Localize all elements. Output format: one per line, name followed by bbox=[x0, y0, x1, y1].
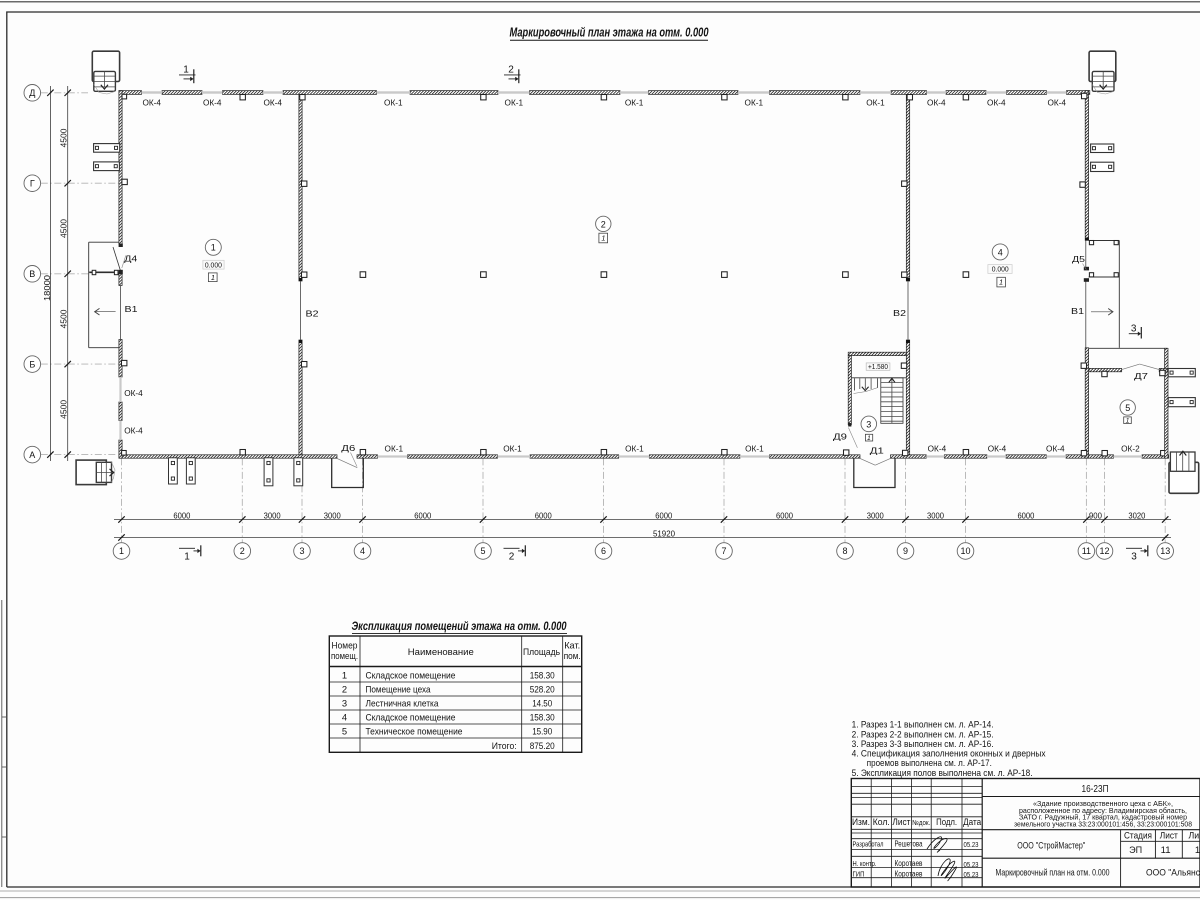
svg-text:4500: 4500 bbox=[59, 219, 69, 238]
svg-text:3000: 3000 bbox=[927, 511, 944, 521]
svg-text:ОК-4: ОК-4 bbox=[928, 443, 947, 453]
svg-text:Изм.: Изм. bbox=[852, 817, 870, 827]
svg-text:16-23П: 16-23П bbox=[1082, 784, 1109, 795]
svg-text:Дата: Дата bbox=[963, 817, 981, 827]
svg-text:528.20: 528.20 bbox=[530, 683, 555, 694]
svg-text:В1: В1 bbox=[125, 304, 138, 314]
svg-text:ЭП: ЭП bbox=[1129, 845, 1142, 856]
svg-text:Д4: Д4 bbox=[124, 254, 137, 264]
svg-text:6000: 6000 bbox=[655, 511, 672, 521]
svg-text:Д6: Д6 bbox=[341, 443, 355, 453]
svg-text:9: 9 bbox=[903, 546, 908, 556]
svg-text:1: 1 bbox=[999, 278, 1003, 287]
svg-text:Коротаев: Коротаев bbox=[895, 859, 923, 868]
svg-text:Лис: Лис bbox=[1189, 831, 1200, 841]
svg-text:ООО "Альянс": ООО "Альянс" bbox=[1146, 868, 1200, 879]
svg-text:Лист: Лист bbox=[892, 817, 910, 827]
svg-text:2: 2 bbox=[509, 551, 515, 562]
svg-text:ОК-1: ОК-1 bbox=[745, 97, 764, 107]
svg-text:ОК-1: ОК-1 bbox=[745, 443, 764, 453]
svg-text:10: 10 bbox=[960, 546, 970, 556]
svg-text:1: 1 bbox=[342, 669, 347, 680]
svg-text:Подл.: Подл. bbox=[936, 817, 957, 827]
svg-text:2: 2 bbox=[240, 546, 245, 556]
svg-text:ОК-4: ОК-4 bbox=[987, 97, 1006, 107]
svg-text:Решетова: Решетова bbox=[895, 839, 924, 848]
svg-text:Лестничная клетка: Лестничная клетка bbox=[366, 697, 440, 708]
svg-text:1: 1 bbox=[601, 234, 605, 243]
svg-text:3000: 3000 bbox=[324, 511, 341, 521]
svg-text:3: 3 bbox=[1131, 551, 1137, 562]
svg-text:6000: 6000 bbox=[1017, 511, 1034, 521]
svg-text:3000: 3000 bbox=[264, 511, 281, 521]
svg-text:3: 3 bbox=[299, 546, 304, 556]
svg-text:ОК-1: ОК-1 bbox=[503, 443, 522, 453]
svg-text:ОК-1: ОК-1 bbox=[384, 97, 403, 107]
svg-text:Д1: Д1 bbox=[870, 445, 884, 455]
svg-text:1: 1 bbox=[211, 243, 216, 253]
svg-text:ОК-4: ОК-4 bbox=[142, 97, 161, 107]
svg-text:ОК-4: ОК-4 bbox=[124, 388, 143, 398]
svg-text:Номер: Номер bbox=[332, 641, 358, 651]
svg-text:1: 1 bbox=[183, 65, 189, 76]
svg-text:12: 12 bbox=[1099, 546, 1109, 556]
svg-text:2: 2 bbox=[342, 683, 347, 694]
svg-text:0.000: 0.000 bbox=[205, 260, 222, 269]
svg-text:Разработал: Разработал bbox=[853, 839, 884, 848]
svg-text:Наименование: Наименование bbox=[408, 647, 474, 658]
svg-text:51920: 51920 bbox=[653, 528, 675, 538]
svg-text:6000: 6000 bbox=[776, 511, 793, 521]
svg-text:4500: 4500 bbox=[59, 400, 69, 419]
svg-text:5: 5 bbox=[342, 725, 347, 736]
svg-text:Помещение цеха: Помещение цеха bbox=[366, 683, 432, 694]
svg-text:Д5: Д5 bbox=[1072, 254, 1085, 264]
svg-text:4: 4 bbox=[342, 711, 347, 722]
svg-text:05.23: 05.23 bbox=[964, 860, 979, 869]
svg-text:+1.580: +1.580 bbox=[868, 362, 888, 371]
svg-text:ОК-1: ОК-1 bbox=[625, 97, 644, 107]
svg-text:Складское помещение: Складское помещение bbox=[366, 669, 456, 680]
svg-text:0.000: 0.000 bbox=[992, 265, 1009, 274]
svg-text:Г: Г bbox=[30, 179, 35, 189]
svg-text:158.30: 158.30 bbox=[530, 669, 555, 680]
svg-text:05.23: 05.23 bbox=[964, 840, 979, 849]
svg-text:ОК-4: ОК-4 bbox=[1046, 443, 1065, 453]
svg-text:В2: В2 bbox=[893, 308, 906, 318]
svg-text:3: 3 bbox=[342, 697, 347, 708]
svg-text:1: 1 bbox=[184, 551, 190, 562]
svg-text:пом.: пом. bbox=[564, 651, 581, 661]
svg-text:Н. контр.: Н. контр. bbox=[853, 859, 877, 868]
svg-text:875.20: 875.20 bbox=[530, 740, 555, 751]
svg-text:ОК-1: ОК-1 bbox=[505, 97, 524, 107]
svg-text:ОК-1: ОК-1 bbox=[385, 443, 404, 453]
svg-text:900: 900 bbox=[1089, 511, 1102, 521]
svg-text:ООО "СтройМастер": ООО "СтройМастер" bbox=[1017, 840, 1085, 850]
svg-text:4: 4 bbox=[360, 546, 365, 556]
svg-text:3020: 3020 bbox=[1128, 511, 1145, 521]
svg-text:Д: Д bbox=[29, 88, 35, 98]
svg-text:Кат.: Кат. bbox=[564, 641, 580, 651]
svg-text:ОК-2: ОК-2 bbox=[1121, 443, 1140, 453]
svg-text:11: 11 bbox=[1082, 546, 1091, 556]
svg-text:4500: 4500 bbox=[59, 128, 69, 147]
svg-text:ОК-1: ОК-1 bbox=[625, 443, 644, 453]
svg-text:ОК-4: ОК-4 bbox=[1047, 97, 1066, 107]
svg-text:ОК-4: ОК-4 bbox=[124, 426, 143, 436]
svg-text:158.30: 158.30 bbox=[530, 711, 555, 722]
svg-text:6: 6 bbox=[601, 546, 606, 556]
svg-text:Коротаев: Коротаев bbox=[895, 869, 923, 878]
svg-text:Кол.: Кол. bbox=[873, 817, 890, 827]
svg-text:Итого:: Итого: bbox=[492, 740, 517, 751]
svg-text:3000: 3000 bbox=[867, 511, 884, 521]
svg-text:2: 2 bbox=[601, 219, 606, 229]
svg-text:земельного участка 33:23:00010: земельного участка 33:23:000101:456, 33:… bbox=[1014, 820, 1192, 829]
svg-text:1: 1 bbox=[1195, 845, 1200, 856]
svg-text:1: 1 bbox=[119, 546, 124, 556]
svg-text:№док.: №док. bbox=[912, 818, 930, 827]
svg-text:05.23: 05.23 bbox=[964, 870, 979, 879]
svg-text:В2: В2 bbox=[306, 309, 319, 319]
svg-text:помещ.: помещ. bbox=[331, 651, 358, 661]
svg-text:Б: Б bbox=[29, 359, 35, 369]
svg-text:8: 8 bbox=[842, 546, 847, 556]
svg-text:Стадия: Стадия bbox=[1124, 831, 1152, 841]
svg-text:6000: 6000 bbox=[414, 511, 431, 521]
svg-text:5: 5 bbox=[480, 546, 485, 556]
svg-text:Маркировочный план этажа на от: Маркировочный план этажа на отм. 0.000 bbox=[510, 25, 709, 40]
svg-text:5. Экспликация полов выполнена: 5. Экспликация полов выполнена см. л. АР… bbox=[852, 768, 1033, 779]
svg-text:Лист: Лист bbox=[1160, 831, 1178, 841]
svg-text:Площадь: Площадь bbox=[523, 646, 560, 657]
svg-text:Маркировочный план на отм. 0.0: Маркировочный план на отм. 0.000 bbox=[996, 867, 1110, 877]
svg-text:3: 3 bbox=[1131, 323, 1137, 334]
svg-text:ОК-1: ОК-1 bbox=[866, 97, 885, 107]
svg-text:1: 1 bbox=[867, 435, 871, 442]
svg-text:1: 1 bbox=[1126, 417, 1130, 424]
svg-text:15.90: 15.90 bbox=[532, 725, 552, 736]
svg-text:4: 4 bbox=[998, 247, 1003, 257]
svg-text:11: 11 bbox=[1161, 845, 1171, 856]
svg-text:Техническое помещение: Техническое помещение bbox=[366, 725, 463, 736]
svg-text:Д9: Д9 bbox=[833, 432, 847, 442]
svg-text:2: 2 bbox=[508, 65, 514, 76]
svg-text:Складское помещение: Складское помещение bbox=[366, 711, 456, 722]
svg-text:ОК-4: ОК-4 bbox=[263, 97, 282, 107]
svg-text:6000: 6000 bbox=[173, 511, 190, 521]
svg-text:4500: 4500 bbox=[59, 309, 69, 328]
svg-text:ГИП: ГИП bbox=[853, 869, 865, 878]
svg-text:7: 7 bbox=[721, 546, 726, 556]
svg-text:В: В bbox=[29, 269, 35, 279]
svg-text:В1: В1 bbox=[1071, 306, 1084, 316]
svg-text:18000: 18000 bbox=[42, 275, 52, 301]
svg-text:1: 1 bbox=[211, 273, 215, 282]
svg-text:Экспликация помещений этажа на: Экспликация помещений этажа на отм. 0.00… bbox=[352, 620, 567, 633]
svg-text:6000: 6000 bbox=[535, 511, 552, 521]
svg-text:5: 5 bbox=[1125, 403, 1130, 413]
svg-text:13: 13 bbox=[1160, 546, 1170, 556]
svg-text:ОК-4: ОК-4 bbox=[988, 443, 1007, 453]
svg-text:14.50: 14.50 bbox=[532, 697, 552, 708]
svg-text:3: 3 bbox=[866, 419, 871, 429]
svg-text:ОК-4: ОК-4 bbox=[927, 97, 946, 107]
svg-text:А: А bbox=[29, 450, 35, 460]
svg-text:ОК-4: ОК-4 bbox=[203, 97, 222, 107]
svg-text:Д7: Д7 bbox=[1134, 371, 1148, 381]
